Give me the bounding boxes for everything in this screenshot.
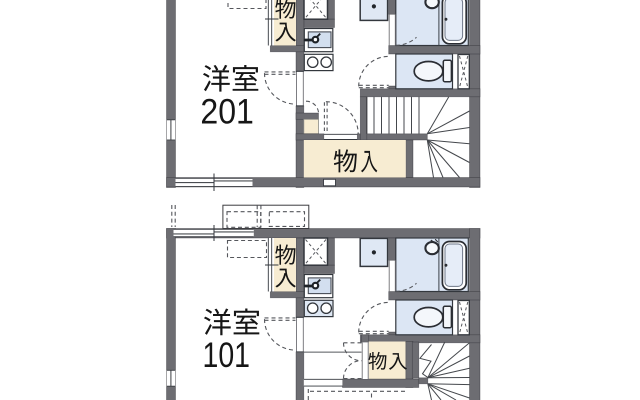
svg-text:201: 201 bbox=[200, 93, 254, 132]
svg-text:101: 101 bbox=[203, 336, 251, 375]
